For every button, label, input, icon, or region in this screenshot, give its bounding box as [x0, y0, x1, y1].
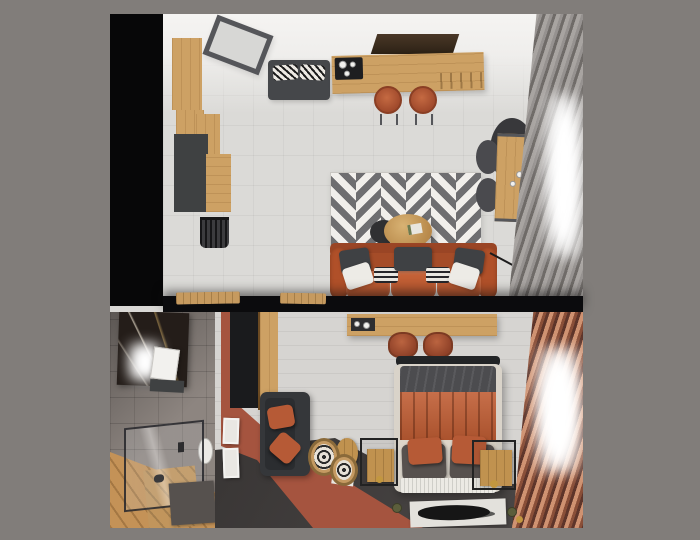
gold-knob — [376, 476, 383, 483]
table-books — [407, 223, 423, 235]
window-light — [534, 346, 583, 474]
bath-shelf — [150, 379, 185, 393]
bedroom-chair — [423, 332, 453, 358]
bathroom — [110, 312, 215, 528]
bed-pillow-rust — [407, 437, 443, 465]
stool-leg — [396, 114, 398, 125]
living-room — [110, 14, 583, 306]
kitchen-island — [332, 52, 485, 94]
mirror-cabinet — [150, 346, 180, 381]
art-frame — [223, 418, 240, 445]
wall-cabinet — [172, 38, 202, 110]
rust-pillow — [266, 404, 295, 430]
striped-pillow — [426, 267, 450, 283]
render-photo — [110, 14, 583, 528]
stool-leg — [380, 114, 382, 125]
door-mat — [176, 291, 240, 304]
bath-mat — [169, 480, 215, 525]
bedroom-wall-desk — [347, 314, 497, 336]
small-plant — [508, 508, 516, 516]
chevron-column — [331, 173, 356, 245]
bar-stool — [374, 86, 402, 114]
bedroom-chair — [388, 332, 418, 358]
pot — [350, 61, 356, 67]
small-plant — [393, 504, 401, 512]
vanity-tray — [351, 318, 375, 331]
island-drawers — [440, 72, 482, 89]
window-light — [544, 94, 583, 258]
chevron-column — [431, 173, 456, 245]
brush-stroke — [418, 504, 490, 522]
zigzag-pillow — [273, 64, 299, 81]
shower-fixture — [178, 442, 184, 453]
brushstroke-rug — [410, 498, 507, 527]
wire-basket — [200, 217, 229, 248]
desk-cup — [510, 181, 516, 187]
art-frame — [222, 448, 239, 479]
bar-stool — [409, 86, 437, 114]
rattan-pouf — [330, 454, 358, 486]
shower-decor — [154, 474, 164, 483]
stool-leg — [415, 114, 417, 125]
pouf-pattern — [336, 460, 352, 480]
nightstand-right — [472, 440, 516, 490]
pot — [339, 61, 347, 69]
sofa — [330, 241, 497, 303]
pot — [344, 71, 350, 77]
cooktop — [335, 57, 364, 80]
bedroom — [110, 312, 583, 528]
cabinet-drawers — [206, 154, 231, 212]
loveseat — [260, 392, 310, 476]
gold-knob — [490, 480, 498, 488]
door-mat — [280, 293, 326, 305]
nightstand-left — [360, 438, 398, 486]
graphite-cabinet — [174, 134, 208, 212]
vanity-item — [354, 321, 360, 327]
zigzag-pillow — [300, 64, 326, 81]
tv-panel — [371, 34, 459, 54]
stool-leg — [431, 114, 433, 125]
vanity-item — [363, 322, 370, 329]
chevron-column — [456, 173, 481, 245]
black-accent-wall — [110, 14, 163, 306]
gold-sphere — [516, 516, 523, 523]
